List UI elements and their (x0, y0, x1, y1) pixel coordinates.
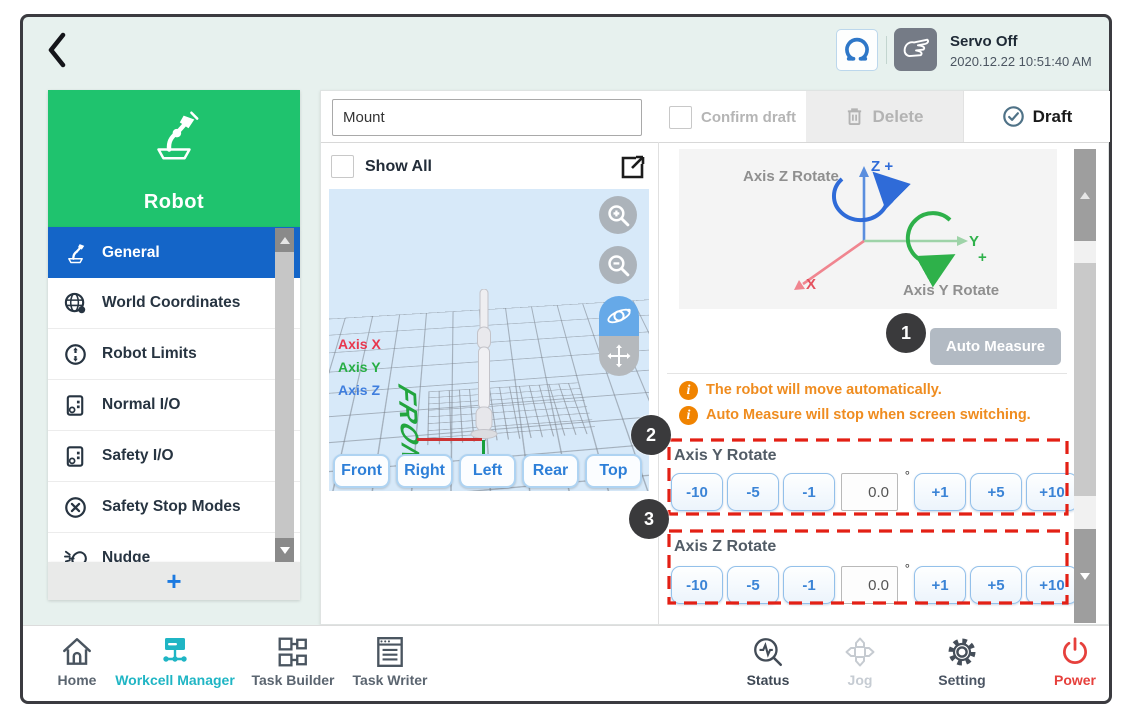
axis-z-angle-input[interactable] (841, 566, 898, 604)
topbar-separator (886, 36, 887, 64)
pan-icon (606, 343, 632, 369)
trash-icon (845, 106, 864, 127)
stop-circle-x-icon (62, 494, 89, 521)
power-icon (1058, 635, 1092, 669)
annotation-circle-1: 1 (886, 313, 926, 353)
servo-status: Servo Off (950, 33, 1018, 50)
globe-icon (62, 290, 89, 317)
reset-pose-button[interactable] (836, 29, 878, 71)
sidebar-item-label: Safety Stop Modes (102, 498, 274, 516)
bottom-nav: Home Workcell Manager (23, 625, 1109, 701)
sidebar-item-general[interactable]: General (48, 227, 300, 278)
app-window: Servo Off 2020.12.22 10:51:40 AM Robot G… (20, 14, 1112, 704)
axis-z-plus-5-button[interactable]: +5 (970, 566, 1022, 604)
info-line-2: Auto Measure will stop when screen switc… (706, 407, 1031, 423)
axis-y-rotate-title: Axis Y Rotate (674, 447, 777, 465)
axis-z-label: Axis Z (338, 382, 380, 398)
workcell-manager-icon (158, 635, 192, 669)
sidebar-add-button[interactable]: + (48, 562, 300, 600)
robot-arm-model (439, 289, 529, 449)
delete-button[interactable]: Delete (806, 91, 963, 142)
nav-task-writer[interactable]: Task Writer (315, 631, 465, 688)
limits-icon (62, 341, 89, 368)
axis-y-rotate-controls: -10 -5 -1 ° +1 +5 +10 (671, 473, 1078, 511)
chevron-up-icon (280, 237, 290, 244)
info-line-1: The robot will move automatically. (706, 382, 942, 398)
rotation-axes-diagram: Axis Z Rotate Axis Y Rotate Z + Y + X (679, 149, 1057, 309)
sidebar-item-safety-stop-modes[interactable]: Safety Stop Modes (48, 482, 300, 533)
view-front-button[interactable]: Front (333, 454, 390, 488)
axis-y-minus-10-button[interactable]: -10 (671, 473, 723, 511)
pan-mode-button[interactable] (599, 336, 639, 376)
sidebar-item-label: World Coordinates (102, 294, 274, 312)
sidebar-item-safety-io[interactable]: Safety I/O (48, 431, 300, 482)
axis-x-label: Axis X (338, 336, 381, 352)
scroll-up-button[interactable] (275, 228, 294, 252)
scrollbar-thumb[interactable] (1074, 263, 1096, 496)
io-icon (62, 392, 89, 419)
degree-unit: ° (905, 561, 910, 576)
home-icon (60, 635, 94, 669)
zoom-in-icon (606, 203, 631, 228)
axis-z-rotate-controls: -10 -5 -1 ° +1 +5 +10 (671, 566, 1078, 604)
io-icon (62, 443, 89, 470)
reset-icon (843, 36, 871, 64)
annotation-circle-3: 3 (629, 499, 669, 539)
mount-name-input[interactable] (332, 99, 642, 136)
chevron-down-icon (1080, 573, 1090, 580)
3d-viewport[interactable]: Axis X Axis Y Axis Z FRONT (329, 189, 649, 491)
show-all-label: Show All (365, 158, 432, 176)
diagram-y-plus-label: + (978, 249, 987, 266)
diagram-y-rotate-label: Axis Y Rotate (903, 282, 999, 299)
view-right-button[interactable]: Right (396, 454, 453, 488)
zoom-out-icon (606, 253, 631, 278)
section-divider (667, 373, 1067, 374)
zoom-out-button[interactable] (599, 246, 637, 284)
scroll-down-button[interactable] (1074, 529, 1096, 623)
scroll-up-button[interactable] (1074, 149, 1096, 241)
sidebar-item-label: Normal I/O (102, 396, 290, 414)
sidebar-menu: General World Coordinates Robot Limits (48, 227, 300, 562)
scrollbar-track[interactable] (275, 252, 294, 538)
status-icon (751, 635, 785, 669)
axis-y-angle-input[interactable] (841, 473, 898, 511)
plus-icon: + (166, 568, 181, 594)
measure-panel-scrollbar[interactable] (1074, 149, 1096, 623)
sidebar-item-label: General (102, 244, 290, 262)
sidebar-item-world-coordinates[interactable]: World Coordinates (48, 278, 300, 329)
confirm-draft-label: Confirm draft (701, 109, 796, 126)
draft-label: Draft (1033, 107, 1073, 127)
diagram-y-axis-label: Y (969, 233, 979, 250)
axis-y-plus-5-button[interactable]: +5 (970, 473, 1022, 511)
delete-label: Delete (872, 107, 923, 127)
datetime: 2020.12.22 10:51:40 AM (950, 54, 1092, 69)
axis-z-rotate-title: Axis Z Rotate (674, 538, 776, 556)
axis-z-minus-5-button[interactable]: -5 (727, 566, 779, 604)
auto-measure-button[interactable]: Auto Measure (930, 328, 1061, 365)
base-axis-x-line (417, 438, 482, 441)
axis-z-minus-1-button[interactable]: -1 (783, 566, 835, 604)
back-chevron-icon (46, 32, 68, 68)
show-all-checkbox[interactable] (331, 155, 354, 178)
draft-button[interactable]: Draft (963, 91, 1110, 142)
main-panel: Confirm draft Delete Draft Show All (320, 90, 1109, 625)
scroll-down-button[interactable] (275, 538, 294, 562)
axis-y-minus-5-button[interactable]: -5 (727, 473, 779, 511)
sidebar-item-nudge[interactable]: Nudge (48, 533, 300, 562)
sidebar-item-normal-io[interactable]: Normal I/O (48, 380, 300, 431)
setting-gear-icon (945, 635, 979, 669)
view-left-button[interactable]: Left (459, 454, 516, 488)
task-builder-icon (276, 635, 310, 669)
expand-icon (618, 153, 646, 181)
axis-z-minus-10-button[interactable]: -10 (671, 566, 723, 604)
axis-y-label: Axis Y (338, 359, 381, 375)
orbit-mode-button[interactable] (599, 296, 639, 336)
screen: Servo Off 2020.12.22 10:51:40 AM Robot G… (0, 0, 1134, 709)
info-icon (679, 406, 698, 425)
sidebar-item-robot-limits[interactable]: Robot Limits (48, 329, 300, 380)
sidebar-title: Robot (48, 191, 300, 214)
axis-y-plus-1-button[interactable]: +1 (914, 473, 966, 511)
orbit-icon (605, 302, 633, 330)
sidebar-item-label: Robot Limits (102, 345, 274, 363)
axis-y-minus-1-button[interactable]: -1 (783, 473, 835, 511)
check-circle-icon (1002, 105, 1025, 128)
zoom-in-button[interactable] (599, 196, 637, 234)
sidebar-header-robot: Robot (48, 90, 300, 227)
sidebar-item-label: Nudge (102, 549, 274, 562)
chevron-up-icon (1080, 192, 1090, 199)
hand-icon (900, 34, 932, 66)
annotation-circle-2: 2 (631, 415, 671, 455)
back-button[interactable] (44, 31, 70, 69)
sidebar-item-label: Safety I/O (102, 447, 274, 465)
nudge-hand-icon (62, 545, 89, 563)
task-writer-icon (373, 635, 407, 669)
chevron-down-icon (280, 547, 290, 554)
axis-z-plus-1-button[interactable]: +1 (914, 566, 966, 604)
diagram-z-axis-label: Z + (871, 158, 893, 175)
axis-y-plus-10-button[interactable]: +10 (1026, 473, 1078, 511)
nav-power[interactable]: Power (1000, 631, 1134, 688)
diagram-z-rotate-label: Axis Z Rotate (743, 168, 839, 185)
servo-hand-button[interactable] (894, 28, 937, 71)
nav-label: Power (1000, 672, 1134, 688)
expand-viewer-button[interactable] (616, 151, 648, 183)
axis-z-plus-10-button[interactable]: +10 (1026, 566, 1078, 604)
degree-unit: ° (905, 468, 910, 483)
sidebar-scrollbar[interactable] (275, 228, 294, 562)
view-top-button[interactable]: Top (585, 454, 642, 488)
info-icon (679, 381, 698, 400)
panel-divider (658, 142, 659, 626)
confirm-draft-checkbox[interactable] (669, 106, 692, 129)
robot-arm-icon (62, 239, 89, 266)
robot-icon (144, 106, 204, 164)
view-rear-button[interactable]: Rear (522, 454, 579, 488)
nav-label: Task Writer (315, 672, 465, 688)
header-divider (321, 142, 1108, 143)
diagram-x-axis-label: X (806, 276, 816, 293)
jog-dpad-icon (843, 635, 877, 669)
